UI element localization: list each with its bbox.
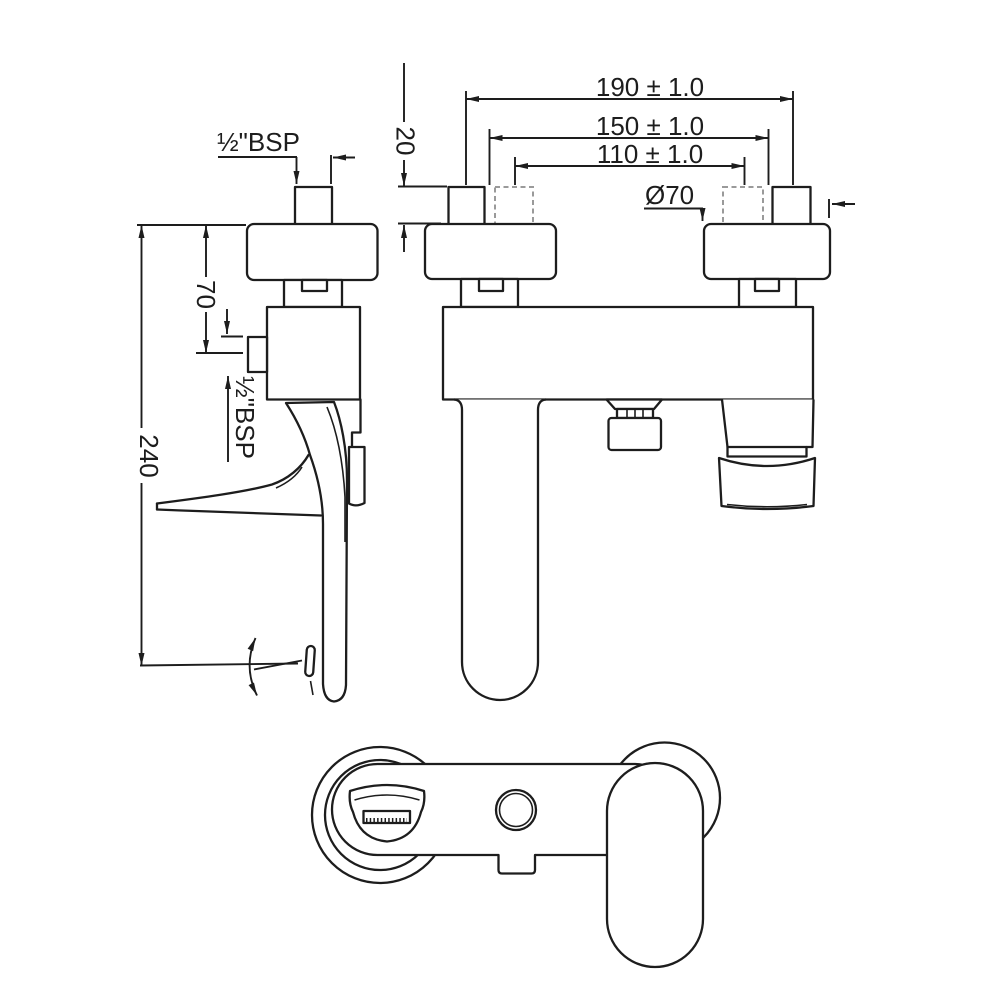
- side-inlet-nipple: [295, 187, 332, 225]
- right-reference-mark: [829, 199, 855, 218]
- handle-assembly: [719, 400, 815, 510]
- dim-150-text: 150 ± 1.0: [596, 111, 704, 141]
- side-shower-outlet-port: [248, 337, 267, 372]
- neck-tab-right: [755, 279, 779, 291]
- dim-110: 110 ± 1.0: [515, 139, 745, 185]
- label-bsp-outlet: ½"BSP: [221, 309, 260, 462]
- diverter-knob: [607, 400, 663, 451]
- inlet-nipple-right: [773, 187, 811, 225]
- diverter-tab: [499, 851, 536, 874]
- side-lever-swing-indicator: [140, 638, 302, 696]
- dim-190-text: 190 ± 1.0: [596, 72, 704, 102]
- drawing-sheet: 240 70 ½"BSP ½"BSP: [0, 0, 1000, 1000]
- dim-70-text: 70: [191, 280, 221, 309]
- dim-110-text: 110 ± 1.0: [597, 139, 703, 169]
- side-handle-profile: [349, 400, 365, 506]
- inlet-nipple-left: [449, 187, 485, 225]
- dim-240-text: 240: [134, 434, 164, 477]
- front-view: [425, 187, 830, 700]
- side-wall-flange: [247, 224, 378, 280]
- side-valve-body: [267, 307, 360, 400]
- swing-arc-arrow: [250, 638, 257, 696]
- bsp-outlet-text: ½"BSP: [230, 376, 260, 459]
- side-lever-slot: [305, 646, 315, 676]
- label-dia-70: Ø70: [644, 180, 703, 221]
- alt-position-nipple-right: [723, 187, 763, 224]
- dim-70: 70: [191, 225, 243, 353]
- mixer-body: [443, 307, 813, 400]
- dim-20: 20: [391, 63, 448, 252]
- technical-drawing: 240 70 ½"BSP ½"BSP: [0, 0, 1000, 1000]
- handle-band: [728, 447, 807, 457]
- mounting-flange-left: [425, 224, 556, 279]
- handle-upper-body: [722, 400, 814, 448]
- side-neck-tab: [302, 280, 327, 291]
- label-bsp-inlet: ½"BSP: [217, 127, 355, 184]
- bottom-view: [312, 743, 720, 968]
- spout-tube: [454, 400, 546, 701]
- handle-knob: [719, 458, 815, 509]
- bsp-inlet-text: ½"BSP: [217, 127, 300, 157]
- side-lever-handle: [286, 402, 347, 702]
- dia-70-text: Ø70: [645, 180, 694, 210]
- side-spout-bottom-edge: [157, 510, 321, 516]
- dim-20-text: 20: [391, 127, 421, 156]
- side-spout-top-edge: [157, 455, 309, 504]
- side-lever-slot-line: [311, 681, 314, 695]
- alt-position-nipple-left: [495, 187, 533, 224]
- neck-tab-left: [479, 279, 503, 291]
- handle-bottom-view: [607, 763, 703, 967]
- dim-240: 240: [134, 225, 164, 666]
- mounting-flange-right: [704, 224, 830, 279]
